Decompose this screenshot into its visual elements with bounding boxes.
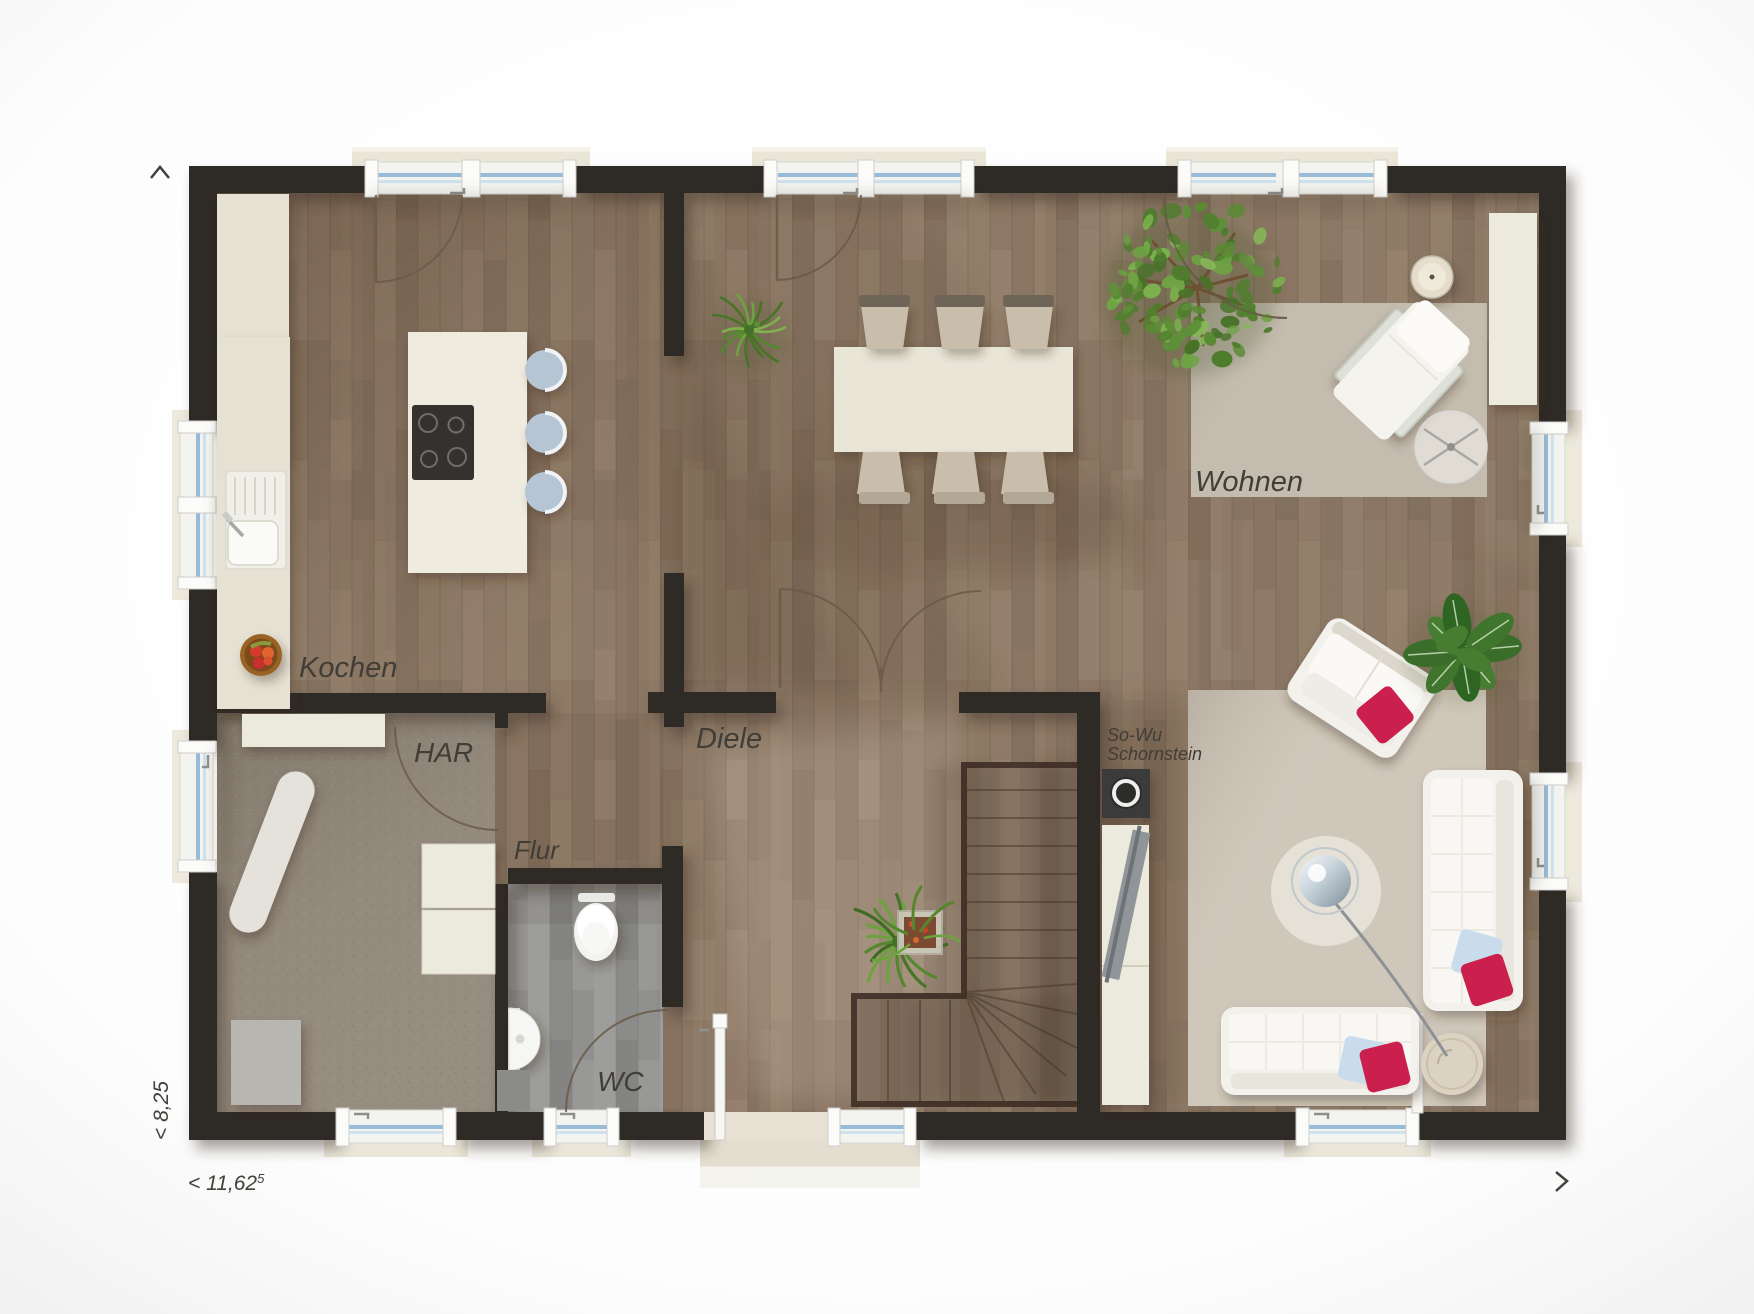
svg-text:HAR: HAR	[414, 737, 473, 768]
svg-text:< 8,25: < 8,25	[150, 1081, 173, 1140]
svg-text:< 11,625: < 11,625	[188, 1171, 265, 1195]
svg-text:Schornstein: Schornstein	[1107, 744, 1202, 764]
svg-text:Flur: Flur	[514, 835, 560, 865]
svg-text:Kochen: Kochen	[299, 652, 397, 684]
svg-text:Diele: Diele	[696, 723, 762, 755]
svg-text:So-Wu: So-Wu	[1107, 725, 1162, 745]
svg-text:WC: WC	[597, 1066, 644, 1097]
svg-text:Wohnen: Wohnen	[1195, 466, 1303, 498]
